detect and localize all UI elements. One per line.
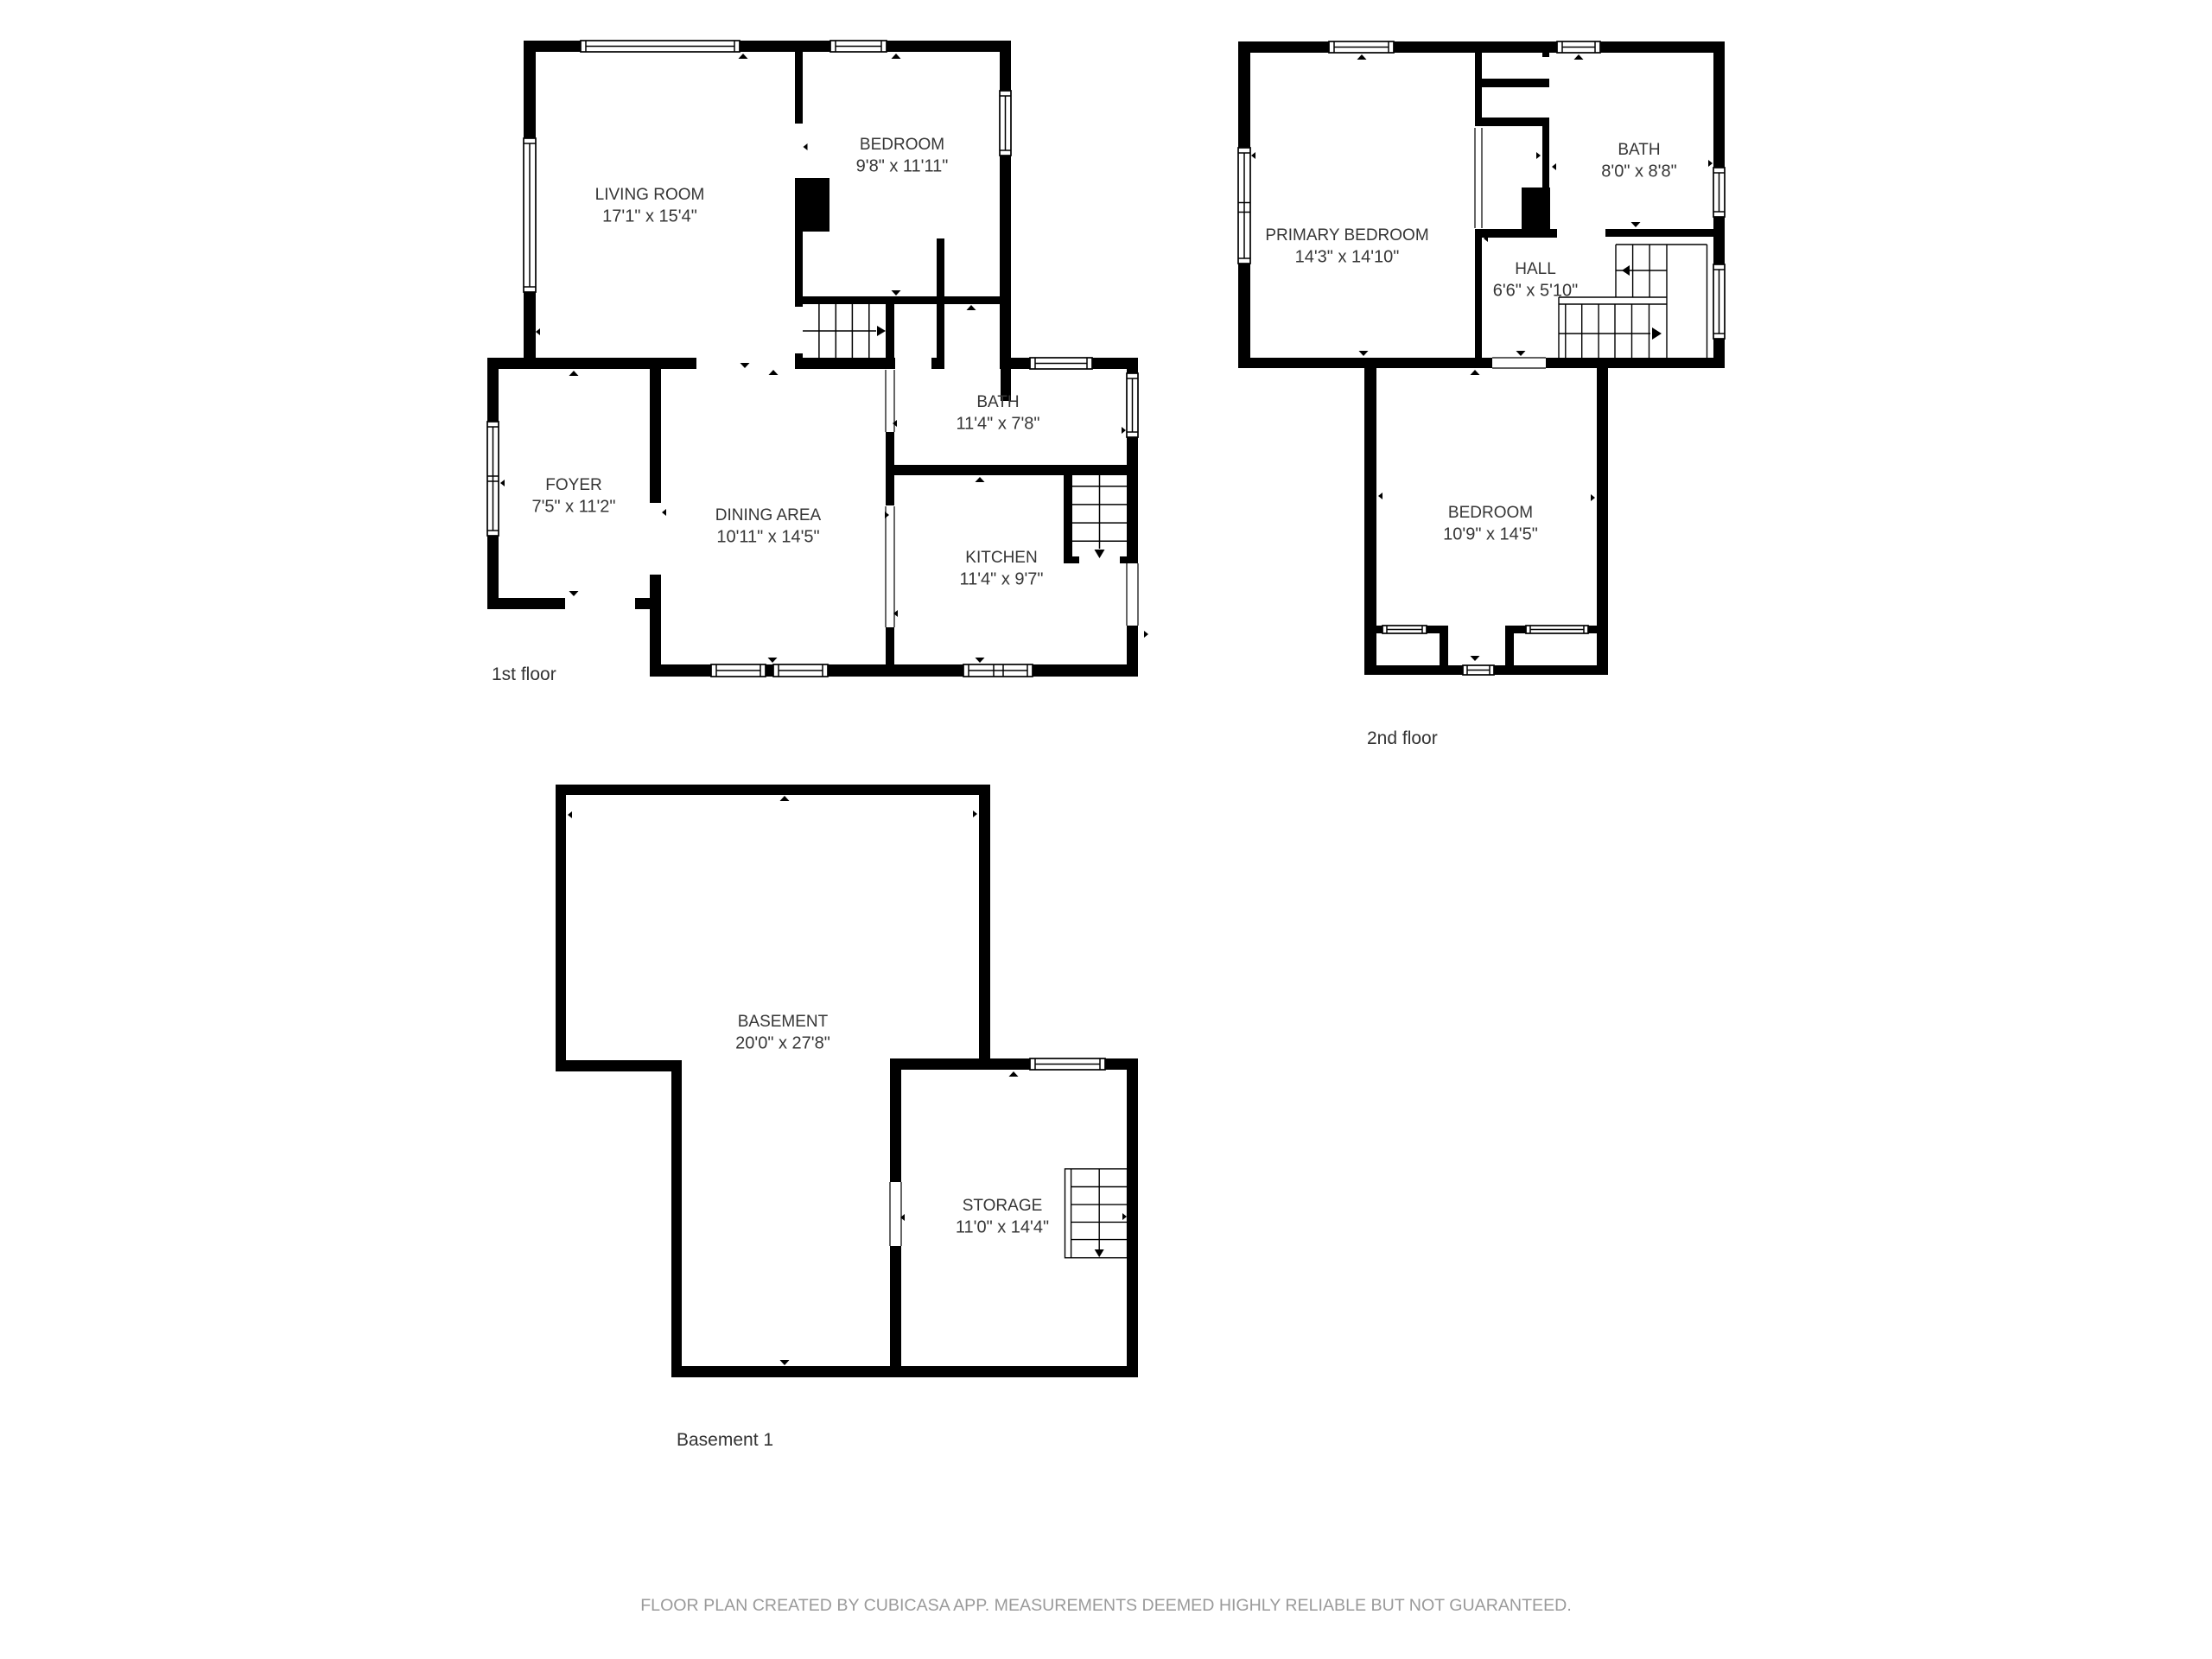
svg-text:BATH: BATH xyxy=(976,393,1019,411)
svg-text:Basement 1: Basement 1 xyxy=(677,1430,773,1450)
svg-text:FLOOR PLAN CREATED BY CUBICASA: FLOOR PLAN CREATED BY CUBICASA APP. MEAS… xyxy=(640,1596,1572,1615)
svg-text:10'11" x 14'5": 10'11" x 14'5" xyxy=(716,527,819,546)
svg-text:BATH: BATH xyxy=(1618,141,1660,159)
svg-text:6'6" x 5'10": 6'6" x 5'10" xyxy=(1493,281,1579,300)
svg-text:KITCHEN: KITCHEN xyxy=(965,549,1037,567)
svg-text:17'1" x 15'4": 17'1" x 15'4" xyxy=(602,207,697,226)
svg-text:BASEMENT: BASEMENT xyxy=(738,1013,829,1031)
svg-text:11'4" x 9'7": 11'4" x 9'7" xyxy=(959,569,1043,588)
svg-text:2nd floor: 2nd floor xyxy=(1367,728,1438,748)
svg-text:14'3" x 14'10": 14'3" x 14'10" xyxy=(1295,247,1400,266)
svg-text:STORAGE: STORAGE xyxy=(963,1197,1043,1215)
svg-text:PRIMARY BEDROOM: PRIMARY BEDROOM xyxy=(1265,226,1428,245)
svg-text:9'8" x 11'11": 9'8" x 11'11" xyxy=(856,156,949,175)
svg-text:HALL: HALL xyxy=(1515,260,1556,278)
svg-text:11'0" x 14'4": 11'0" x 14'4" xyxy=(956,1217,1049,1236)
svg-text:7'5" x 11'2": 7'5" x 11'2" xyxy=(531,497,615,516)
svg-text:BEDROOM: BEDROOM xyxy=(860,136,944,154)
svg-text:DINING AREA: DINING AREA xyxy=(715,506,822,524)
svg-text:20'0" x 27'8": 20'0" x 27'8" xyxy=(735,1033,830,1052)
svg-text:FOYER: FOYER xyxy=(545,476,601,494)
svg-text:10'9" x 14'5": 10'9" x 14'5" xyxy=(1443,524,1538,543)
svg-text:BEDROOM: BEDROOM xyxy=(1448,504,1533,522)
svg-text:8'0" x 8'8": 8'0" x 8'8" xyxy=(1601,162,1676,181)
svg-text:11'4" x 7'8": 11'4" x 7'8" xyxy=(956,414,1039,433)
svg-text:LIVING ROOM: LIVING ROOM xyxy=(595,186,705,204)
svg-text:1st floor: 1st floor xyxy=(492,664,556,684)
